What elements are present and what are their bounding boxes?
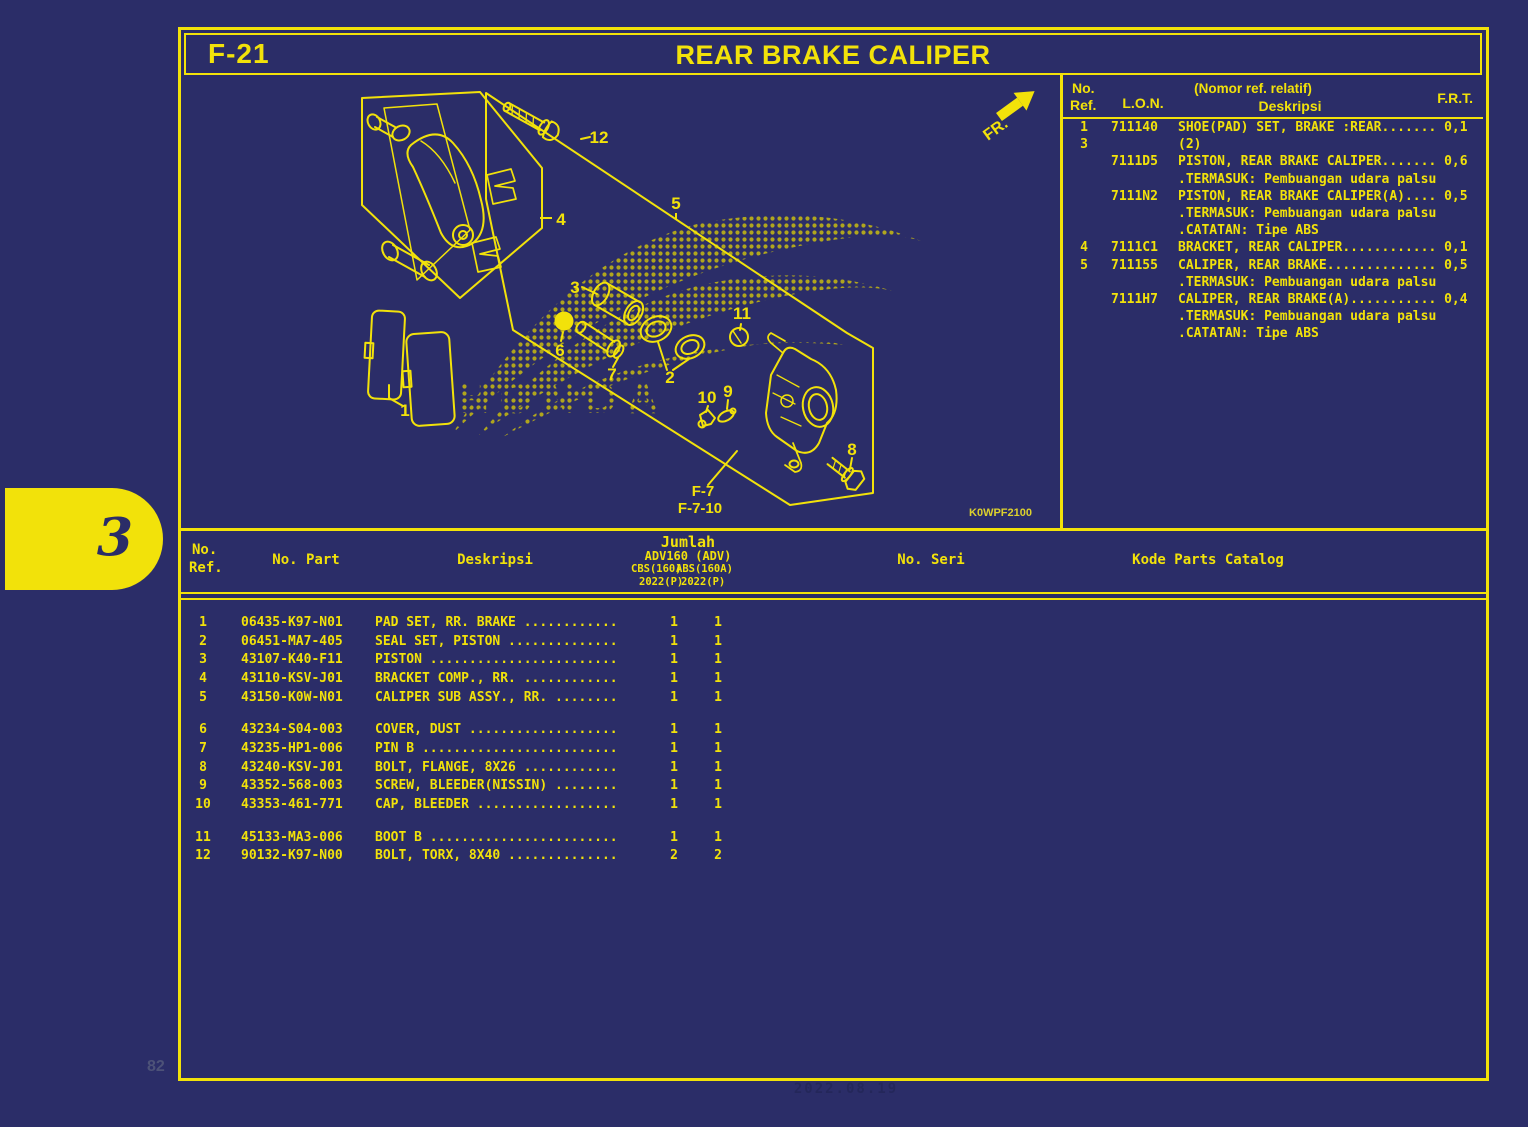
c-q: 1	[657, 722, 691, 737]
lon-table: 1711140SHOE(PAD) SET, BRAKE :REAR.......…	[1066, 119, 1484, 342]
c-ref: 11	[181, 830, 225, 845]
diagram-label-8[interactable]: 8	[847, 440, 856, 459]
c-ref: 10	[181, 797, 225, 812]
part-screw-bleeder	[716, 400, 735, 424]
l-lon: 7111C1	[1111, 240, 1161, 255]
diagram-label-2[interactable]: 2	[665, 368, 674, 387]
part-bracket	[365, 112, 484, 283]
parts-table-row[interactable]: 543150-K0W-N01CALIPER SUB ASSY., RR. ...…	[181, 688, 1486, 707]
parts-header-year2: 2022(P)	[681, 576, 725, 588]
lon-header-frt: F.R.T.	[1410, 90, 1473, 106]
l-text: .TERMASUK: Pembuangan udara palsu	[1178, 206, 1436, 221]
honda-watermark-text: HONDA	[457, 374, 668, 423]
lon-table-line: 3(2)	[1066, 136, 1484, 153]
c-ref: 9	[181, 778, 225, 793]
parts-header-ref-line2: Ref.	[189, 560, 223, 576]
c-q: 1	[701, 778, 735, 793]
parts-table-row[interactable]: 106435-K97-N01PAD SET, RR. BRAKE .......…	[181, 613, 1486, 632]
footer-date-stamp: 2022.08.19	[756, 1081, 936, 1097]
page-title: REAR BRAKE CALIPER	[186, 40, 1480, 71]
parts-table-row[interactable]: 206451-MA7-405SEAL SET, PISTON .........…	[181, 632, 1486, 651]
c-q: 2	[657, 848, 691, 863]
c-q: 1	[701, 652, 735, 667]
parts-table-row[interactable]: 1043353-461-771CAP, BLEEDER ............…	[181, 795, 1486, 814]
c-part: 43235-HP1-006	[241, 741, 375, 756]
c-q: 1	[657, 778, 691, 793]
lon-header-lon: L.O.N.	[1112, 95, 1174, 111]
c-q: 1	[657, 690, 691, 705]
c-ref: 1	[181, 615, 225, 630]
parts-header-kode: Kode Parts Catalog	[1108, 552, 1308, 568]
lon-table-line: .CATATAN: Tipe ABS	[1066, 222, 1484, 239]
title-bar: F-21 REAR BRAKE CALIPER	[184, 33, 1482, 75]
c-desc: SCREW, BLEEDER(NISSIN) ........	[375, 778, 625, 793]
l-lon: 7111N2	[1111, 189, 1161, 204]
l-ref: 5	[1066, 258, 1102, 273]
l-text: BRACKET, REAR CALIPER............ 0,1	[1178, 240, 1468, 255]
lon-table-line: .TERMASUK: Pembuangan udara palsu	[1066, 171, 1484, 188]
diagram-label-6[interactable]: 6	[555, 341, 564, 360]
c-desc: BRACKET COMP., RR. ............	[375, 671, 625, 686]
diagram-label-3[interactable]: 3	[570, 278, 579, 297]
lon-table-line: 7111N2PISTON, REAR BRAKE CALIPER(A).... …	[1066, 188, 1484, 205]
part-caliper-body	[766, 333, 837, 472]
l-text: .CATATAN: Tipe ABS	[1178, 223, 1319, 238]
l-ref: 1	[1066, 120, 1102, 135]
lon-table-line: 1711140SHOE(PAD) SET, BRAKE :REAR.......…	[1066, 119, 1484, 136]
c-q: 1	[657, 830, 691, 845]
lon-header-desc-line2: Deskripsi	[1200, 98, 1380, 114]
diagram-label-9[interactable]: 9	[723, 382, 732, 401]
c-q: 1	[701, 615, 735, 630]
header-bottom-line-2	[181, 598, 1486, 600]
l-lon: 7111H7	[1111, 292, 1161, 307]
fr-label: FR.	[980, 115, 1011, 144]
pad-clip-top	[487, 169, 516, 204]
parts-header-variant2: ABS(160A)	[676, 563, 733, 575]
exploded-diagram: HONDA FR.	[181, 75, 1060, 527]
lon-table-line: 5711155CALIPER, REAR BRAKE..............…	[1066, 257, 1484, 274]
c-q: 1	[657, 760, 691, 775]
lon-table-line: .TERMASUK: Pembuangan udara palsu	[1066, 274, 1484, 291]
c-ref: 7	[181, 741, 225, 756]
c-q: 1	[701, 830, 735, 845]
lon-header-ref-line2: Ref.	[1070, 97, 1096, 113]
c-q: 1	[657, 615, 691, 630]
c-desc: CALIPER SUB ASSY., RR. ........	[375, 690, 625, 705]
lon-table-line: 7111D5PISTON, REAR BRAKE CALIPER....... …	[1066, 153, 1484, 170]
parts-table-row[interactable]: 843240-KSV-J01BOLT, FLANGE, 8X26 .......…	[181, 758, 1486, 777]
parts-table-row[interactable]: 643234-S04-003COVER, DUST ..............…	[181, 720, 1486, 739]
c-desc: BOOT B ........................	[375, 830, 625, 845]
c-q: 1	[657, 634, 691, 649]
part-bolt-flange	[823, 452, 866, 493]
c-q: 1	[701, 690, 735, 705]
c-part: 43240-KSV-J01	[241, 760, 375, 775]
parts-table-row[interactable]: 1290132-K97-N00BOLT, TORX, 8X40 ........…	[181, 847, 1486, 866]
parts-header-model: ADV160 (ADV)	[628, 549, 748, 563]
parts-header-seri: No. Seri	[871, 552, 991, 568]
c-desc: PAD SET, RR. BRAKE ............	[375, 615, 625, 630]
l-text: .TERMASUK: Pembuangan udara palsu	[1178, 309, 1436, 324]
c-part: 43110-KSV-J01	[241, 671, 375, 686]
diagram-label-4[interactable]: 4	[556, 210, 566, 229]
drawing-code: K0WPF2100	[969, 507, 1032, 519]
c-part: 43107-K40-F11	[241, 652, 375, 667]
part-cap-bleeder	[699, 406, 716, 428]
l-lon: 711155	[1111, 258, 1161, 273]
parts-header-variant1: CBS(160)	[631, 563, 682, 575]
l-text: (2)	[1178, 137, 1201, 152]
table-top-line	[181, 528, 1486, 531]
c-part: 43353-461-771	[241, 797, 375, 812]
c-desc: PISTON ........................	[375, 652, 625, 667]
lon-table-line: 7111H7CALIPER, REAR BRAKE(A)........... …	[1066, 291, 1484, 308]
l-ref: 4	[1066, 240, 1102, 255]
c-part: 43234-S04-003	[241, 722, 375, 737]
parts-header-part: No. Part	[246, 552, 366, 568]
c-part: 06435-K97-N01	[241, 615, 375, 630]
c-ref: 12	[181, 848, 225, 863]
c-desc: SEAL SET, PISTON ..............	[375, 634, 625, 649]
honda-wing-watermark: HONDA	[453, 215, 921, 437]
l-text: .CATATAN: Tipe ABS	[1178, 326, 1319, 341]
c-part: 90132-K97-N00	[241, 848, 375, 863]
c-part: 06451-MA7-405	[241, 634, 375, 649]
diagram-ref-f7[interactable]: F-7	[692, 483, 715, 500]
part-bolt-torx	[500, 97, 590, 143]
c-ref: 2	[181, 634, 225, 649]
part-boot-b	[730, 324, 748, 346]
diagram-label-10[interactable]: 10	[698, 388, 717, 407]
c-ref: 4	[181, 671, 225, 686]
l-text: SHOE(PAD) SET, BRAKE :REAR....... 0,1	[1178, 120, 1468, 135]
c-ref: 5	[181, 690, 225, 705]
catalog-page: F-21 REAR BRAKE CALIPER HONDA	[0, 0, 1528, 1127]
header-bottom-line-1	[181, 592, 1486, 594]
parts-table: 106435-K97-N01PAD SET, RR. BRAKE .......…	[181, 613, 1486, 865]
parts-table-row[interactable]: 343107-K40-F11PISTON ...................…	[181, 650, 1486, 669]
c-part: 43352-568-003	[241, 778, 375, 793]
c-ref: 6	[181, 722, 225, 737]
c-q: 1	[701, 634, 735, 649]
lon-header-ref-line1: No.	[1072, 80, 1095, 96]
c-ref: 8	[181, 760, 225, 775]
l-ref: 3	[1066, 137, 1102, 152]
lon-header-desc-line1: (Nomor ref. relatif)	[1163, 81, 1343, 96]
lon-table-line: .TERMASUK: Pembuangan udara palsu	[1066, 308, 1484, 325]
diagram-label-1[interactable]: 1	[400, 401, 409, 420]
parts-header-ref-line1: No.	[192, 542, 217, 558]
l-text: .TERMASUK: Pembuangan udara palsu	[1178, 172, 1436, 187]
c-q: 1	[657, 741, 691, 756]
l-lon: 7111D5	[1111, 154, 1161, 169]
diagram-label-7[interactable]: 7	[607, 365, 616, 384]
row-group-gap	[181, 706, 1486, 720]
l-lon: 711140	[1111, 120, 1161, 135]
part-pad-set	[365, 310, 456, 426]
l-text: .TERMASUK: Pembuangan udara palsu	[1178, 275, 1436, 290]
c-part: 45133-MA3-006	[241, 830, 375, 845]
c-desc: BOLT, FLANGE, 8X26 ............	[375, 760, 625, 775]
c-desc: BOLT, TORX, 8X40 ..............	[375, 848, 625, 863]
diagram-ref-f7-10[interactable]: F-7-10	[678, 500, 722, 517]
row-group-gap	[181, 814, 1486, 828]
c-desc: CAP, BLEEDER ..................	[375, 797, 625, 812]
c-q: 1	[701, 797, 735, 812]
parts-header-desc: Deskripsi	[435, 552, 555, 568]
c-q: 1	[701, 671, 735, 686]
c-q: 1	[657, 797, 691, 812]
parts-table-row[interactable]: 1145133-MA3-006BOOT B ..................…	[181, 828, 1486, 847]
parts-table-row[interactable]: 943352-568-003SCREW, BLEEDER(NISSIN) ...…	[181, 777, 1486, 796]
l-text: CALIPER, REAR BRAKE.............. 0,5	[1178, 258, 1468, 273]
c-q: 1	[701, 760, 735, 775]
c-desc: PIN B .........................	[375, 741, 625, 756]
c-q: 1	[657, 671, 691, 686]
parts-table-row[interactable]: 743235-HP1-006PIN B ....................…	[181, 739, 1486, 758]
chapter-tab[interactable]: 3	[5, 488, 163, 590]
c-q: 1	[701, 722, 735, 737]
diagram-label-11[interactable]: 11	[733, 304, 751, 323]
parts-header-year1: 2022(P)	[639, 576, 683, 588]
c-q: 2	[701, 848, 735, 863]
c-q: 1	[657, 652, 691, 667]
page-number: 82	[147, 1058, 165, 1076]
c-ref: 3	[181, 652, 225, 667]
parts-table-row[interactable]: 443110-KSV-J01BRACKET COMP., RR. .......…	[181, 669, 1486, 688]
panel-divider	[1060, 75, 1063, 528]
lon-table-line: .CATATAN: Tipe ABS	[1066, 325, 1484, 342]
lon-table-line: 47111C1BRACKET, REAR CALIPER............…	[1066, 239, 1484, 256]
diagram-label-5[interactable]: 5	[671, 194, 680, 213]
chapter-tab-number: 3	[97, 507, 133, 568]
c-part: 43150-K0W-N01	[241, 690, 375, 705]
l-text: PISTON, REAR BRAKE CALIPER....... 0,6	[1178, 154, 1468, 169]
l-text: PISTON, REAR BRAKE CALIPER(A).... 0,5	[1178, 189, 1468, 204]
part-dust-cover	[555, 312, 574, 331]
c-q: 1	[701, 741, 735, 756]
c-desc: COVER, DUST ...................	[375, 722, 625, 737]
lon-table-line: .TERMASUK: Pembuangan udara palsu	[1066, 205, 1484, 222]
diagram-label-12[interactable]: 12	[590, 128, 609, 147]
l-text: CALIPER, REAR BRAKE(A)........... 0,4	[1178, 292, 1468, 307]
